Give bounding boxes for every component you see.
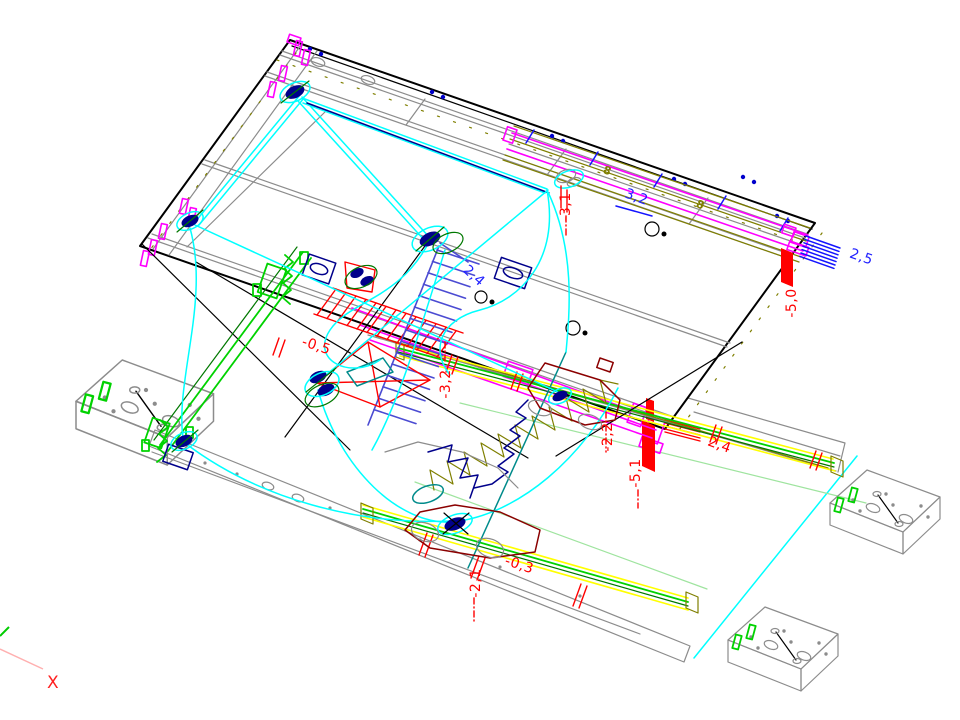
rail-line: [512, 133, 808, 235]
platform-line: [277, 60, 798, 242]
hole-markers: [475, 222, 667, 336]
dim-label-m5-1: -5,1: [628, 458, 644, 487]
cable-line: [195, 225, 560, 393]
axis-x-line: [0, 649, 43, 669]
axis-x-label: X: [47, 673, 59, 693]
platform-line: [674, 233, 822, 437]
dim-label-2-5: 2,5: [847, 246, 875, 269]
hatch-line: [419, 296, 461, 310]
hole-marker: [490, 300, 495, 305]
cable-line: [195, 95, 300, 222]
cable-line: [302, 254, 336, 284]
lower-frame: [149, 398, 866, 662]
lower-frame-line: [203, 461, 206, 464]
hatch-line: [392, 364, 434, 378]
platform-edge-clips: [140, 34, 310, 266]
dim-label-m2-1: -2,1: [468, 568, 484, 597]
rail-line: [419, 533, 427, 555]
platform-line: [280, 55, 805, 238]
platform-line: [187, 110, 327, 247]
cable-line: [468, 352, 566, 568]
marker-shape: [781, 248, 793, 287]
cable-line: [199, 98, 304, 225]
dim-label-m2-2: -2,2: [600, 422, 616, 451]
platform-line: [140, 40, 815, 429]
cable-line: [307, 103, 549, 193]
mounting-bracket-right-lower: [728, 607, 838, 691]
cable-line: [368, 342, 380, 407]
lower-frame-line: [149, 430, 690, 662]
dim-label-m5-0: -5,0: [784, 288, 800, 317]
axis-y-arrow: [0, 627, 9, 636]
bolt-dot: [319, 52, 323, 56]
dimension-extension-lines: [273, 206, 652, 622]
cable-line: [185, 443, 450, 521]
hole-marker: [583, 331, 588, 336]
hatch-line: [374, 410, 416, 424]
rail-line: [509, 144, 805, 246]
axis-indicator: X: [0, 627, 59, 693]
platform-line: [406, 99, 425, 125]
hole-marker: [475, 291, 487, 303]
lower-frame-line: [578, 594, 581, 597]
dim-label-2-4-red: 2,4: [705, 434, 733, 457]
cable-line: [317, 380, 430, 383]
bolt-dot: [441, 95, 445, 99]
hole-marker: [645, 222, 659, 236]
bolt-dot: [752, 180, 756, 184]
dimension-annotations: 2,5 -5,0 -3,1 3,2 2,4 -3,2 -2,2 -5,1 2,4…: [273, 163, 875, 622]
bolt-dot: [741, 175, 745, 179]
carriage-part: [597, 358, 613, 372]
dim-label-m0-5: -0,5: [300, 334, 333, 358]
clip-magenta: [267, 82, 276, 98]
cable-line: [309, 261, 329, 276]
lower-frame-line: [498, 565, 501, 568]
extension-line: [273, 338, 279, 355]
cable-line: [168, 258, 311, 451]
mounting-bracket-right-upper: [830, 470, 940, 554]
rail-line: [398, 348, 834, 463]
carriage-part: [410, 481, 446, 507]
dim-label-m3-2: -3,2: [438, 369, 454, 398]
corner-marker-right: [781, 224, 840, 287]
cad-viewport[interactable]: 2,5 -5,0 -3,1 3,2 2,4 -3,2 -2,2 -5,1 2,4…: [0, 0, 960, 720]
rail-line: [398, 352, 834, 467]
bolt-dot: [430, 90, 434, 94]
lower-frame-line: [152, 452, 640, 634]
cad-canvas[interactable]: 2,5 -5,0 -3,1 3,2 2,4 -3,2 -2,2 -5,1 2,4…: [0, 0, 960, 720]
cable-line: [318, 390, 452, 522]
bolt-dot: [550, 134, 554, 138]
cable-line: [142, 440, 149, 451]
hatch-line: [424, 284, 466, 298]
hole-marker: [662, 232, 667, 237]
lower-frame-line: [694, 456, 857, 658]
extension-line: [279, 340, 285, 357]
cable-line: [298, 101, 426, 242]
rail-line: [503, 160, 799, 262]
extension-line: [616, 206, 652, 216]
dim-label-2-4-blue: 2,4: [459, 262, 487, 290]
right-guide-rail: [352, 308, 843, 477]
carriages: [385, 358, 620, 561]
bottom-guide-rail: [361, 503, 698, 613]
